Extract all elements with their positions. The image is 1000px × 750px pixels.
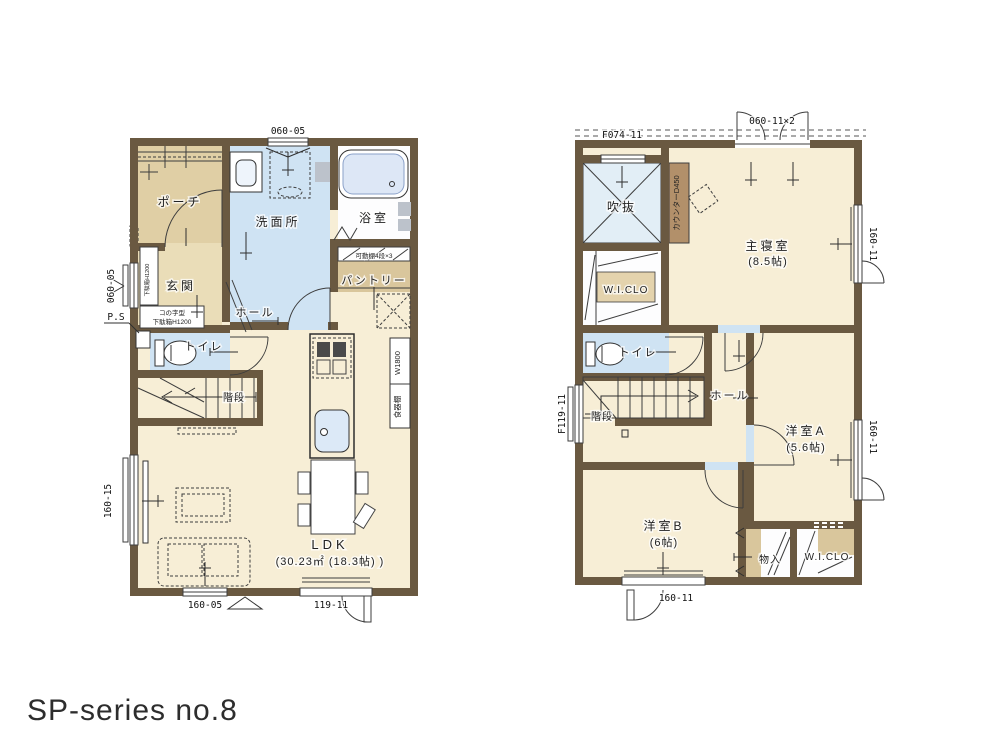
label-entrance: 玄関 [166, 278, 196, 293]
label-toilet-1f: トイレ [185, 341, 224, 353]
dim-bottom-window: 160-05 [188, 600, 222, 611]
label-stairs-2f: 階段 [591, 410, 613, 423]
label-shoebox-strip: 下駄箱H1200 [143, 264, 151, 297]
entry-step-mark [228, 597, 262, 609]
label-toilet-2f: トイレ [619, 347, 658, 359]
label-storage: 物入 [759, 553, 781, 566]
floorplan-canvas: ポーチ 玄関 洗面所 浴室 パントリー 可動棚4段×3 ホール トイレ 階段 L… [0, 0, 1000, 750]
dim-window-f074: F074-11 [602, 130, 642, 141]
label-ldk-size: (30.23㎡ (18.3帖) ) [276, 555, 385, 568]
label-void: 吹抜 [607, 200, 637, 214]
dim-terrace-door: 119-11 [314, 600, 349, 611]
label-room-b-size: (6帖) [650, 536, 678, 549]
label-stairs-1f: 階段 [223, 391, 245, 404]
label-master-size: (8.5帖) [748, 255, 788, 268]
dim-window-room-b: 160-11 [659, 593, 694, 604]
label-ldk: LDK [311, 537, 348, 552]
dim-window-master-top: 060-11×2 [749, 116, 795, 127]
label-master: 主寝室 [745, 238, 790, 253]
label-ps: P.S [107, 312, 124, 323]
label-cupboard-width: W1800 [393, 351, 402, 375]
dim-left-window: 060-05 [106, 269, 117, 303]
label-hall-1f: ホール [236, 306, 275, 319]
label-shoebox-1: コの字型 [159, 308, 186, 317]
label-counter: カウンターD450 [672, 175, 681, 230]
washer-pan [315, 162, 330, 182]
floor2-plan: 吹抜 カウンターD450 W.I.CLO 主寝室 (8.5帖) トイレ 階段 ホ… [557, 112, 884, 620]
floorplan-drawing: ポーチ 玄関 洗面所 浴室 パントリー 可動棚4段×3 ホール トイレ 階段 L… [0, 0, 1000, 750]
series-title: SP-series no.8 [27, 694, 238, 728]
floor1-plan: ポーチ 玄関 洗面所 浴室 パントリー 可動棚4段×3 ホール トイレ 階段 L… [103, 126, 418, 622]
dim-window-room-a: 160-11 [867, 420, 878, 455]
label-cupboard: 食器棚 [392, 396, 402, 419]
label-wic-lower: W.I.CLO [805, 552, 850, 563]
dim-top-window: 060-05 [271, 126, 305, 137]
tv-board [143, 461, 148, 543]
label-bathroom: 浴室 [359, 210, 389, 225]
label-pantry: パントリー [341, 274, 407, 287]
dim-window-stairs: F119-11 [557, 394, 568, 434]
label-washroom: 洗面所 [255, 215, 300, 229]
label-room-b: 洋室B [643, 518, 684, 533]
label-shoebox-2: 下駄箱H1200 [153, 317, 192, 326]
label-hall-2f: ホール [711, 389, 750, 402]
label-pantry-note: 可動棚4段×3 [355, 251, 392, 260]
dim-living-window: 160-15 [103, 484, 114, 518]
dim-window-master-right: 160-11 [867, 227, 878, 262]
label-room-a: 洋室A [785, 423, 826, 438]
label-wic-upper: W.I.CLO [604, 285, 649, 296]
label-porch: ポーチ [157, 195, 202, 209]
label-room-a-size: (5.6帖) [786, 441, 826, 454]
